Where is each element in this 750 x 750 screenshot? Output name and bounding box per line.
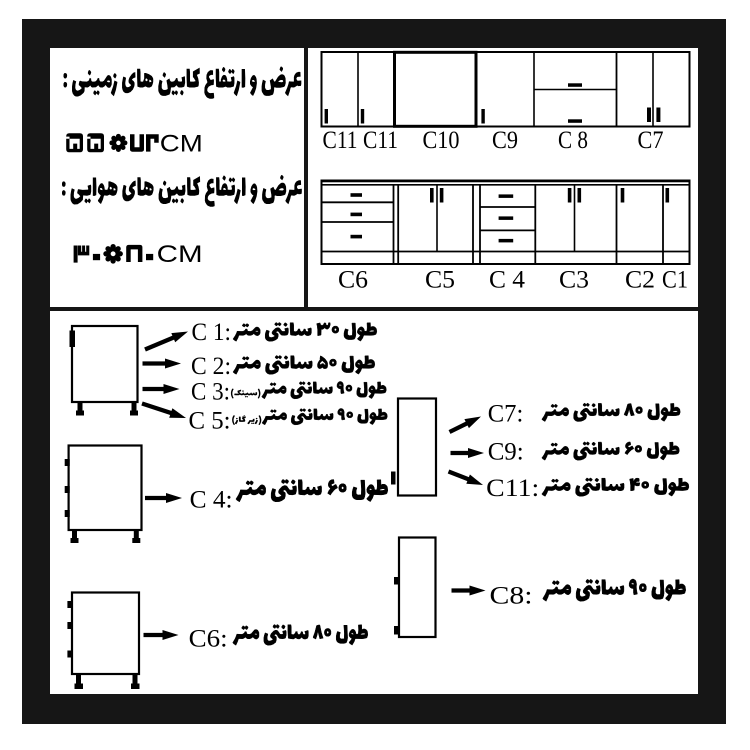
svg-text:CM: CM	[157, 241, 203, 268]
svg-text:C11:: C11:	[486, 473, 539, 502]
svg-text:C 1:: C 1:	[192, 317, 232, 346]
svg-text:C11: C11	[323, 127, 358, 154]
svg-text:C 4:: C 4:	[190, 485, 233, 514]
svg-text:C9: C9	[492, 127, 518, 154]
svg-text:C7: C7	[638, 127, 664, 154]
svg-text:CM: CM	[160, 131, 203, 158]
svg-text:C 3:: C 3:	[191, 377, 230, 406]
svg-text:C1: C1	[662, 267, 688, 294]
svg-text:C2: C2	[625, 267, 655, 294]
svg-text:C 8: C 8	[558, 127, 588, 154]
svg-text:C9:: C9:	[488, 437, 524, 466]
svg-text:C11: C11	[363, 127, 398, 154]
svg-text:C6:: C6:	[189, 624, 228, 653]
svg-text:C6: C6	[338, 267, 368, 294]
svg-text:C10: C10	[423, 127, 460, 154]
svg-text:C5: C5	[425, 267, 455, 294]
svg-text:C 5:: C 5:	[189, 406, 231, 435]
svg-text:C7:: C7:	[488, 399, 524, 428]
svg-text:C 4: C 4	[489, 267, 525, 294]
svg-text:C3: C3	[559, 267, 589, 294]
svg-text:C8:: C8:	[490, 581, 533, 610]
